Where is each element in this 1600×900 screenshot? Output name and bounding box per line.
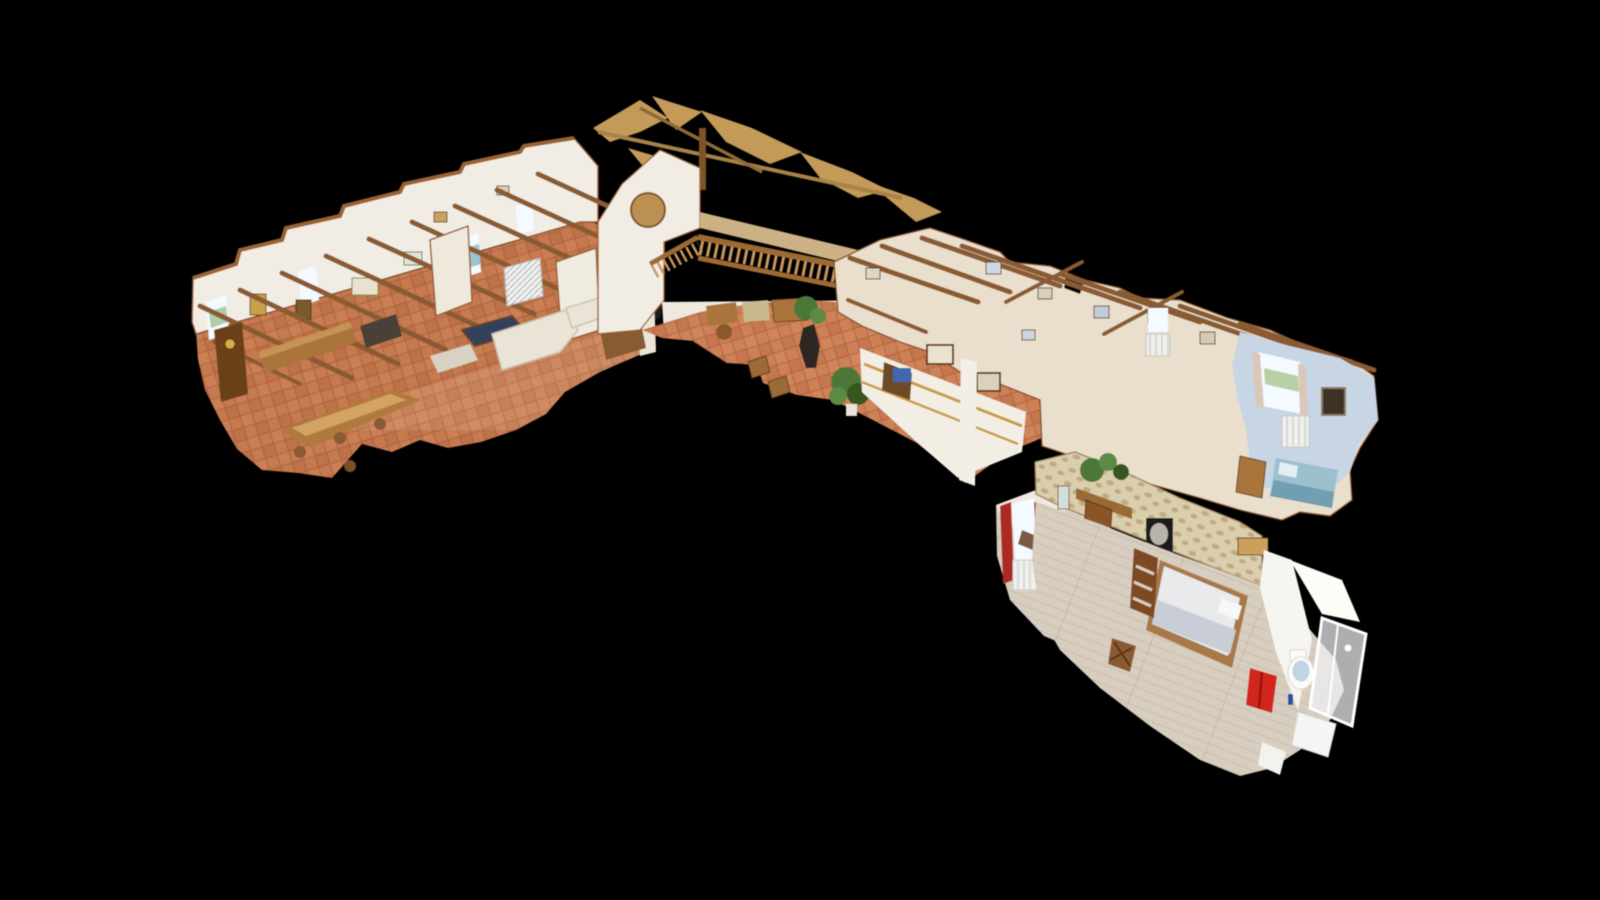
dark-picture-frame — [1322, 388, 1345, 415]
plant-pot — [846, 404, 857, 416]
picture-frame — [1200, 332, 1215, 344]
picture-frame — [1094, 306, 1109, 318]
mirror — [1058, 486, 1069, 509]
toilet-brush — [1288, 694, 1293, 705]
bedroom-glimpse — [893, 368, 911, 382]
shower-light — [1345, 645, 1352, 652]
picture-frame — [434, 212, 447, 222]
small-radiator — [1146, 334, 1170, 356]
pedestal-table — [716, 324, 732, 340]
lion-art — [1238, 538, 1268, 555]
chair — [374, 418, 386, 430]
corner-post — [959, 358, 977, 486]
plant-foliage — [829, 387, 847, 405]
blue-room-radiator — [1282, 416, 1309, 447]
wall-basket-decor — [631, 193, 665, 227]
picture-frame — [986, 262, 1001, 274]
picture-frame — [866, 268, 880, 279]
painted-cabinet — [742, 300, 770, 322]
wood-door — [1236, 456, 1266, 498]
cabinet — [706, 302, 738, 326]
plant-foliage — [810, 308, 826, 324]
chair — [334, 432, 346, 444]
poster-image — [1150, 523, 1168, 545]
plant-foliage — [1113, 464, 1129, 480]
wall-stub — [430, 226, 472, 316]
clock-face — [226, 340, 235, 349]
bathroom-window — [1148, 308, 1168, 332]
picture-frame — [1022, 330, 1035, 340]
chair — [294, 446, 306, 458]
viewer-canvas[interactable] — [0, 0, 1600, 900]
dollhouse-scene — [0, 0, 1600, 900]
picture-frame — [927, 345, 953, 364]
chair — [344, 460, 356, 472]
picture-frame — [1038, 288, 1052, 299]
picture-frame — [977, 373, 1000, 391]
toilet-seat — [1293, 661, 1310, 682]
